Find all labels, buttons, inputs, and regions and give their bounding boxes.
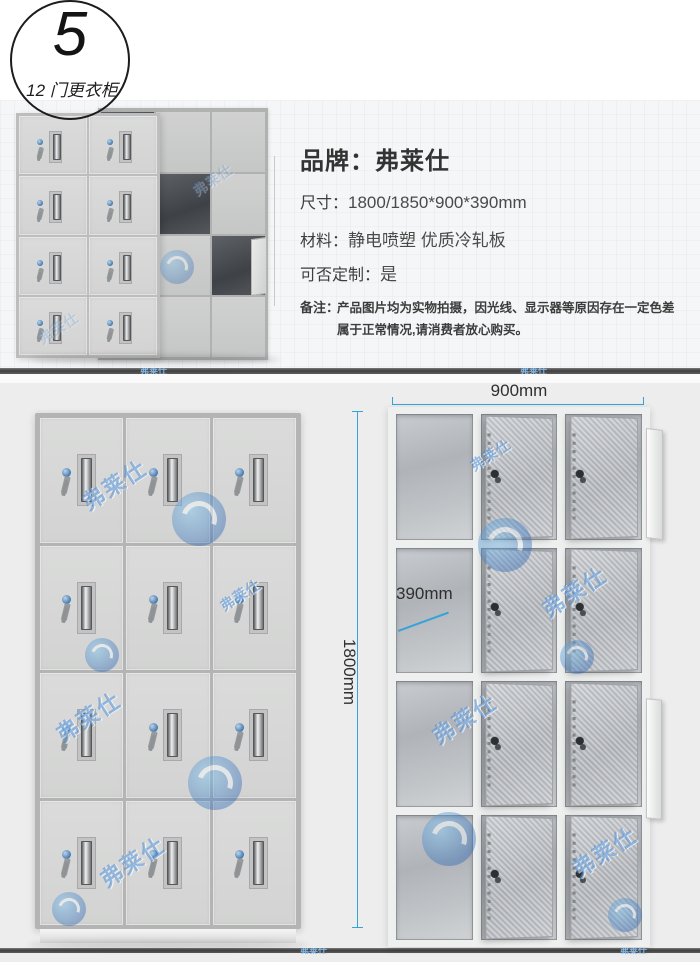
bar-watermark: 弗莱仕	[300, 948, 344, 954]
customizable-value: 是	[380, 265, 397, 284]
customizable-label: 可否定制：	[300, 267, 380, 284]
brand-row: 品牌：弗莱仕	[300, 141, 450, 176]
brand-watermark-logo	[560, 640, 594, 674]
size-row: 尺寸：1800/1850*900*390mm	[300, 189, 527, 213]
note-line-2: 属于正常情况,请消费者放心购买。	[337, 319, 528, 338]
width-dimension-tick	[643, 397, 644, 405]
locker-door	[565, 414, 642, 540]
item-title: 12 门更衣柜	[8, 76, 136, 101]
locker-door	[481, 815, 558, 941]
open-door-panel	[646, 428, 663, 540]
brand-watermark-logo	[608, 898, 642, 932]
photo-front-locker	[16, 113, 160, 358]
brand-label: 品牌：	[300, 148, 375, 175]
width-dimension-tick	[392, 397, 393, 405]
product-detail-page: 5 12 门更衣柜 品牌：弗莱仕 尺寸：1800/1850*900*390mm …	[0, 0, 700, 962]
width-dimension-line	[392, 404, 644, 405]
locker-door	[213, 801, 296, 926]
brand-watermark-logo	[478, 518, 532, 572]
brand-value: 弗莱仕	[375, 148, 450, 175]
note-label: 备注：	[300, 297, 339, 316]
bar-watermark: 弗莱仕	[140, 368, 184, 374]
item-number-badge: 5 12 门更衣柜	[10, 0, 130, 120]
material-row: 材料：静电喷塑 优质冷轧板	[300, 226, 506, 251]
height-dimension-tick	[352, 411, 363, 412]
locker-door	[156, 297, 209, 357]
closed-locker-shadow	[28, 941, 308, 949]
depth-dimension-label: 390mm	[396, 584, 453, 604]
locker-door	[396, 414, 473, 540]
locker-door	[89, 116, 157, 174]
locker-door	[212, 236, 265, 296]
locker-door	[396, 548, 473, 674]
locker-door	[19, 237, 87, 295]
customizable-row: 可否定制：是	[300, 260, 397, 285]
locker-door	[565, 681, 642, 807]
bar-watermark: 弗莱仕	[520, 368, 564, 374]
brand-watermark-logo	[85, 638, 119, 672]
locker-door	[126, 546, 209, 671]
locker-door	[89, 237, 157, 295]
size-label: 尺寸：	[300, 195, 348, 212]
locker-door	[89, 176, 157, 234]
locker-door	[89, 297, 157, 355]
item-number: 5	[12, 2, 128, 69]
material-value: 静电喷塑 优质冷轧板	[348, 231, 506, 250]
open-locker-image	[388, 407, 650, 947]
material-label: 材料：	[300, 233, 348, 250]
brand-watermark-logo	[422, 812, 476, 866]
brand-watermark-logo	[172, 492, 226, 546]
photo-locker-shadow	[30, 355, 280, 364]
height-dimension-label: 1800mm	[339, 635, 359, 709]
width-dimension-label: 900mm	[390, 381, 648, 401]
brand-watermark-logo	[52, 892, 86, 926]
locker-door	[19, 116, 87, 174]
brand-watermark-logo	[160, 250, 194, 284]
locker-door	[19, 176, 87, 234]
vertical-divider	[274, 156, 275, 306]
locker-door	[212, 297, 265, 357]
bar-watermark: 弗莱仕	[620, 948, 664, 954]
locker-door	[156, 112, 209, 172]
size-value: 1800/1850*900*390mm	[348, 193, 527, 212]
bottom-divider-bar	[0, 948, 700, 953]
brand-watermark-logo	[188, 756, 242, 810]
open-door-panel	[646, 698, 662, 819]
note-line-1: 产品图片均为实物拍摄，因光线、显示器等原因存在一定色差	[337, 297, 675, 316]
height-dimension-tick	[352, 927, 363, 928]
